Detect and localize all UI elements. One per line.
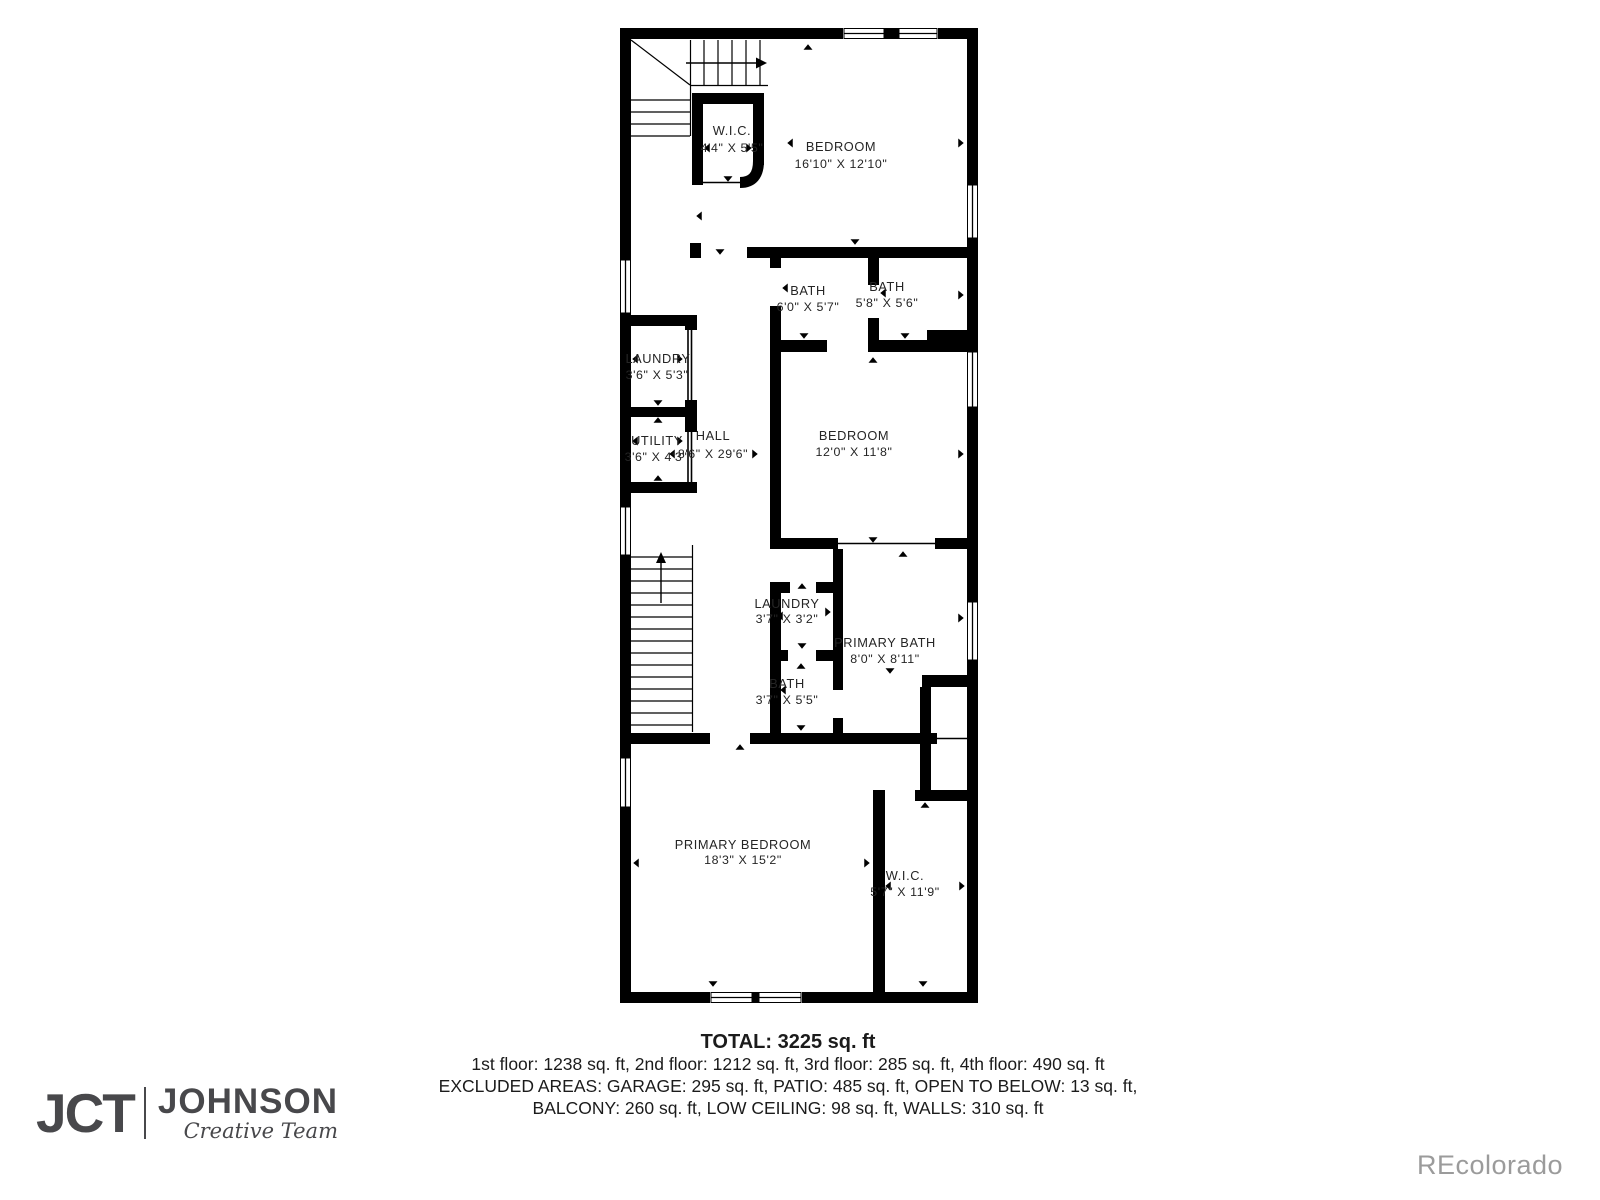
room-dims-primary-bath: 8'0" X 8'11" [850,652,919,666]
outer-walls [620,28,978,1003]
stairs-lower [631,545,693,732]
room-dims-laundry-1: 3'6" X 5'3" [626,368,689,382]
room-label-laundry-2: LAUNDRY [754,596,819,611]
room-label-wic-bottom: W.I.C. [886,868,924,883]
room-dims-bath-2: 5'8" X 5'6" [856,296,919,310]
watermark: REcolorado [1417,1150,1563,1181]
company-logo: JCT JOHNSON Creative Team [36,1080,338,1146]
logo-monogram: JCT [36,1086,134,1141]
room-dims-hall: 8'6" X 29'6" [678,447,748,461]
room-label-primary-bath: PRIMARY BATH [834,635,936,650]
room-label-bedroom-mid: BEDROOM [819,428,889,443]
logo-company-name: JOHNSON [158,1084,338,1119]
room-dims-bedroom-top: 16'10" X 12'10" [795,157,888,171]
room-label-primary-bedroom: PRIMARY BEDROOM [675,837,812,852]
floor-plan: W.I.C. 4'4" X 5'5" BEDROOM 16'10" X 12'1… [620,28,978,1003]
room-label-hall: HALL [696,428,730,443]
room-label-utility: UTILITY [631,433,683,448]
room-label-bath-1: BATH [790,283,826,298]
total-area-text: TOTAL: 3225 sq. ft [0,1031,1576,1053]
room-label-wic-top: W.I.C. [713,123,751,138]
room-dims-wic-bottom: 5'7" X 11'9" [870,885,939,899]
floor-areas-text: 1st floor: 1238 sq. ft, 2nd floor: 1212 … [0,1053,1576,1075]
logo-divider [144,1087,146,1139]
room-dims-bedroom-mid: 12'0" X 11'8" [816,445,893,459]
room-dims-wic-top: 4'4" X 5'5" [701,141,764,155]
floor-plan-svg: W.I.C. 4'4" X 5'5" BEDROOM 16'10" X 12'1… [620,28,978,1003]
logo-tagline: Creative Team [184,1121,338,1142]
room-label-laundry-1: LAUNDRY [625,351,690,366]
room-dims-laundry-2: 3'7" X 3'2" [756,612,819,626]
windows [621,28,978,1003]
room-dims-bath-1: 6'0" X 5'7" [777,300,840,314]
room-dims-bath-3: 3'7" X 5'5" [756,693,819,707]
interior-walls [631,93,967,992]
room-label-bath-3: BATH [769,676,805,691]
room-labels: W.I.C. 4'4" X 5'5" BEDROOM 16'10" X 12'1… [625,123,940,899]
room-label-bedroom-top: BEDROOM [806,139,876,154]
room-label-bath-2: BATH [869,279,905,294]
room-dims-primary-bedroom: 18'3" X 15'2" [704,853,782,867]
